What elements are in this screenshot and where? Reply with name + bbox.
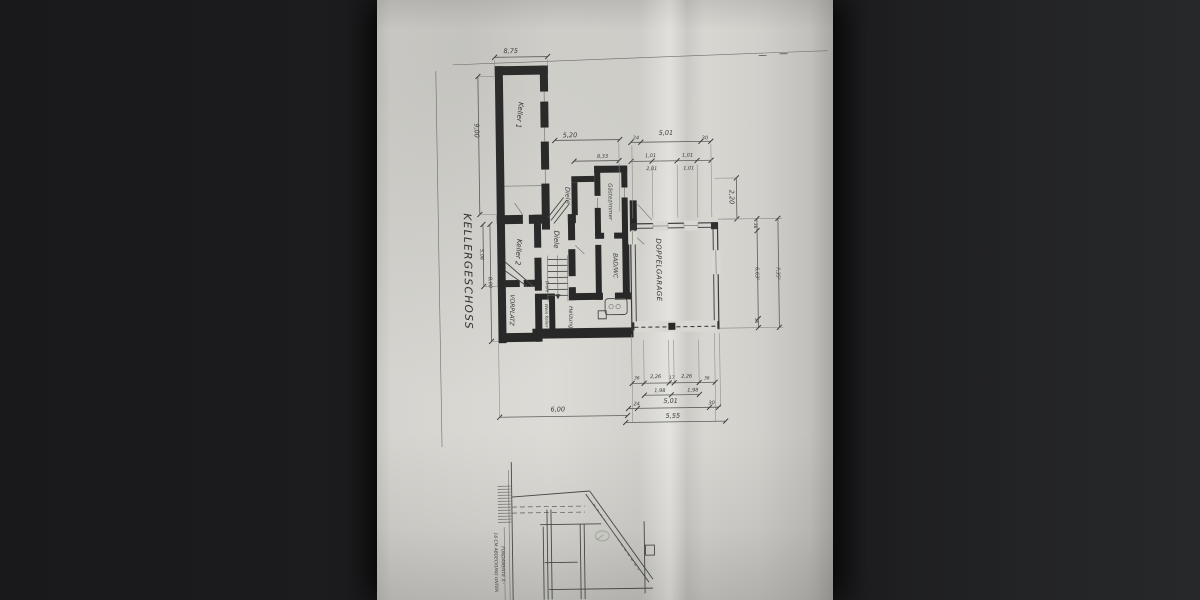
dim-pair-top-1: 1,01	[682, 153, 693, 159]
paper-sheet: 8,75 9,00 5,06 8,00 5,20 8,33 24 5,01 30…	[377, 0, 833, 600]
dim-bot1-3: 2,26	[681, 374, 692, 380]
dim-pair-bottom-0: 2,01	[646, 166, 657, 172]
section-note-line1: 16 CM ABDECKUNG UNTER	[492, 532, 499, 592]
room-label-vorplatz: VORPLATZ	[508, 294, 516, 326]
dim-bot3-0: 24	[633, 401, 639, 407]
dim-left-height: 9,00	[473, 123, 481, 138]
dim-chain1-2: 30	[702, 135, 708, 141]
room-label-heizung: Heizung	[567, 306, 573, 329]
section-note-line2: FUNDAMENTE 3.-	[499, 546, 506, 584]
dim-pair-bottom-1: 1,01	[683, 166, 694, 172]
room-label-doppelgarage: DOPPELGARAGE	[654, 238, 663, 302]
dim-bot2-0: 1,98	[654, 388, 665, 394]
dim-chain1-1: 5,01	[659, 129, 674, 137]
dim-bot1-1: 2,26	[650, 374, 661, 380]
floor-plan-drawing: 8,75 9,00 5,06 8,00 5,20 8,33 24 5,01 30…	[377, 0, 833, 600]
dim-right-outer: 7,35⁵	[775, 267, 781, 280]
dim-pair-top-0: 1,01	[645, 153, 656, 159]
room-label-diele-top: Diele	[563, 187, 571, 204]
drawing-frame	[436, 51, 833, 447]
dim-bot2-1: 1,98	[687, 387, 698, 393]
room-label-diele-small: Diele	[544, 281, 550, 293]
plan-title: KELLERGESCHOSS	[461, 213, 475, 330]
dim-bot1-2: 17	[669, 375, 675, 381]
dim-mid-b: 8,33	[597, 154, 608, 160]
photo-background: 8,75 9,00 5,06 8,00 5,20 8,33 24 5,01 30…	[0, 0, 1200, 600]
dim-house-total: 6,00	[550, 405, 565, 413]
dim-mid-a: 5,20	[563, 131, 578, 139]
dim-bot3-1: 5,01	[663, 397, 678, 405]
room-label-gaestezimmer: Gästezimmer	[606, 183, 613, 221]
dim-garage-total: 5,55	[666, 412, 681, 420]
dim-top-width: 8,75	[503, 47, 518, 55]
section-sketch	[497, 460, 655, 600]
room-label-weinkeller: Wein Keller	[544, 304, 549, 328]
dim-chain1-0: 24	[633, 135, 639, 141]
dim-bot1-0: 36	[634, 375, 640, 381]
walls-keller1	[495, 66, 550, 231]
dim-left-inner-b: 8,00	[487, 277, 493, 288]
room-label-keller2: Keller 2	[513, 239, 523, 266]
walls-garage	[628, 203, 722, 332]
boiler-symbol	[598, 298, 627, 318]
dim-bot1-4: 36	[704, 375, 710, 381]
dim-right-wall-top: 36	[752, 223, 758, 229]
dim-right-wall-bottom: 36	[753, 318, 759, 324]
dim-right-inner: 6,63⁵	[754, 267, 760, 280]
room-label-keller1: Keller 1	[514, 102, 525, 129]
room-label-diele-mid: Diele	[552, 230, 560, 248]
dim-left-inner-a: 5,06	[478, 249, 484, 260]
room-label-bad-wc: BAD/WC	[611, 253, 618, 279]
dim-right-offset: 2,20	[727, 190, 735, 205]
dim-bot3-2: 30	[708, 400, 714, 406]
